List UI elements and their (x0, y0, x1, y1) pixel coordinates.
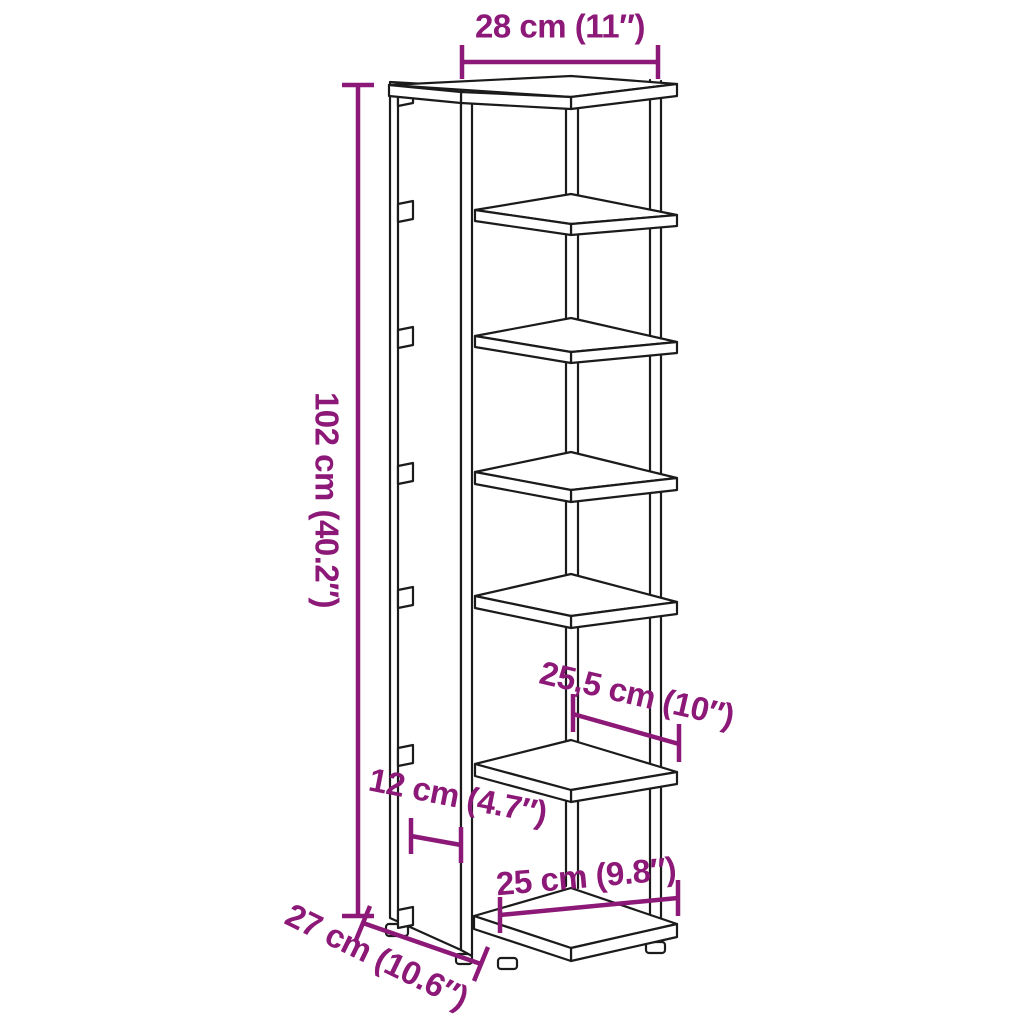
shelf-tab (398, 587, 413, 608)
left-side-panel (390, 82, 472, 956)
dimension-line-front-width (462, 45, 658, 79)
shelf-tab (398, 745, 413, 766)
shelf-tab (398, 907, 413, 928)
dimension-label-front-width: 28 cm (11″) (475, 10, 645, 43)
product-dimension-diagram: 28 cm (11″) 102 cm (40.2″) 25,5 cm (10″)… (0, 0, 1024, 1024)
shelf-tab (398, 201, 413, 222)
dimension-label-height: 102 cm (40.2″) (311, 392, 344, 608)
shelf-tab (398, 463, 413, 484)
shelf-tab (398, 327, 413, 348)
foot (498, 958, 517, 969)
